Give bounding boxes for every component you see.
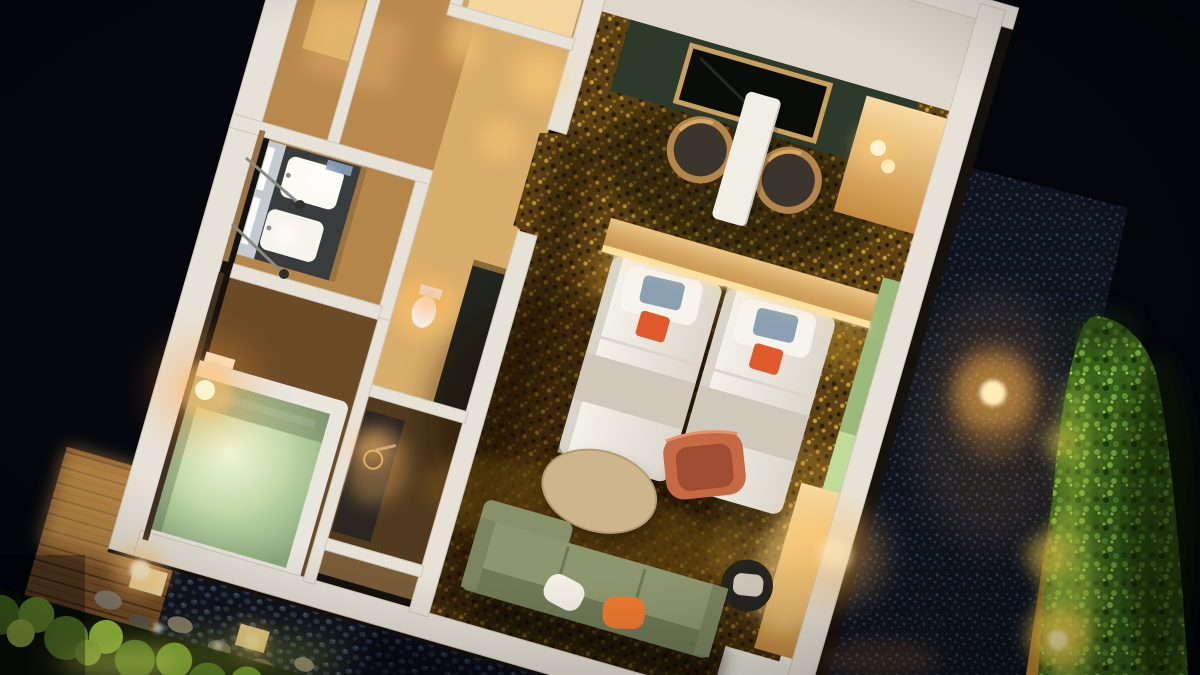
render-canvas: Night-time 3D cutaway rendering of a hot… bbox=[0, 0, 1200, 675]
hotel-room-3d-render: Night-time 3D cutaway rendering of a hot… bbox=[0, 0, 1200, 675]
vignette bbox=[0, 0, 1200, 675]
